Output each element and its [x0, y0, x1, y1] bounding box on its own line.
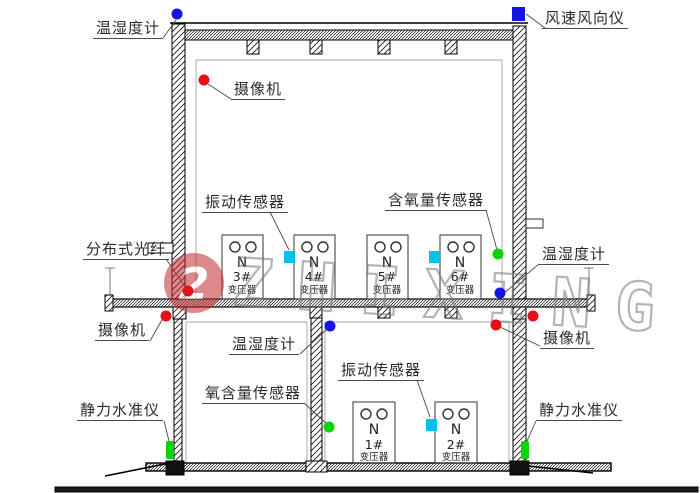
svg-text:变压器: 变压器 — [360, 451, 389, 463]
svg-text:变压器: 变压器 — [442, 451, 471, 463]
vibration-marker-lower — [426, 419, 437, 431]
watermark-brand-text: ZHIXING — [231, 244, 681, 348]
bushing-icon — [443, 409, 453, 419]
svg-text:2#: 2# — [447, 437, 465, 452]
temp-humidity-marker-upper-right — [495, 288, 506, 299]
label-temp-humidity-upper-right: 温湿度计 — [539, 246, 609, 265]
vibration-marker-upper — [284, 251, 295, 263]
svg-text:N: N — [369, 422, 379, 438]
static-level-marker-right — [521, 441, 529, 459]
label-distributed-fiber: 分布式光纤 — [83, 241, 169, 260]
fiber-marker — [183, 286, 194, 297]
temp-humidity-marker-lower — [325, 321, 336, 332]
label-static-level-left: 静力水准仪 — [77, 402, 163, 421]
camera-marker-mid-right-inner — [491, 320, 502, 331]
sheet-border-bar — [55, 487, 698, 492]
section-drawing: N 3# 变压器 N 4# 变压器 N 5# 变压器 N 6# 变压器 — [0, 0, 700, 493]
static-level-marker-left — [166, 441, 174, 459]
oxygen-marker-upper — [493, 249, 504, 260]
right-wall — [513, 26, 526, 463]
svg-text:N: N — [451, 422, 461, 438]
bushing-icon — [361, 409, 371, 419]
watermark-logo-digit: 2 — [179, 259, 210, 310]
bushing-icon — [391, 242, 401, 252]
label-vibration-upper: 振动传感器 — [202, 194, 288, 213]
label-vibration-lower: 振动传感器 — [338, 362, 424, 381]
label-static-level-right: 静力水准仪 — [536, 402, 622, 421]
transformer-2: N 2# 变压器 — [435, 402, 477, 463]
label-camera-mid-right: 摄像机 — [540, 330, 594, 349]
bushing-icon — [375, 242, 385, 252]
roof-slab — [172, 30, 526, 40]
temp-humidity-marker-top-left — [172, 9, 183, 20]
label-temp-humidity-lower: 温湿度计 — [229, 336, 299, 355]
middle-wall-footing — [306, 461, 327, 472]
bushing-icon — [464, 242, 474, 252]
label-wind-speed-direction: 风速风向仪 — [542, 10, 628, 29]
vibration-marker-upper-2 — [429, 251, 440, 263]
svg-text:1#: 1# — [365, 437, 383, 452]
right-wall-footing — [510, 461, 529, 475]
transformer-1: N 1# 变压器 — [353, 402, 395, 463]
camera-marker-mid-left — [161, 311, 172, 322]
label-camera-mid-left: 摄像机 — [95, 322, 149, 341]
left-cantilever-end — [105, 295, 113, 311]
label-oxygen-upper: 含氧量传感器 — [385, 192, 487, 211]
bushing-icon — [448, 242, 458, 252]
label-camera-top: 摄像机 — [231, 81, 285, 100]
camera-marker-mid-right-outer — [528, 311, 539, 322]
bushing-icon — [377, 409, 387, 419]
camera-marker-top — [199, 75, 210, 86]
wind-instrument-marker — [512, 7, 525, 21]
label-temp-humidity-top-left: 温湿度计 — [93, 20, 163, 39]
bushing-icon — [459, 409, 469, 419]
label-oxygen-lower: 氧含量传感器 — [202, 385, 304, 404]
middle-lower-wall — [311, 307, 322, 463]
roof-beams — [247, 40, 457, 54]
right-wall-corbel — [526, 219, 543, 228]
left-lower-wall — [174, 307, 182, 463]
oxygen-marker-lower — [324, 422, 335, 433]
